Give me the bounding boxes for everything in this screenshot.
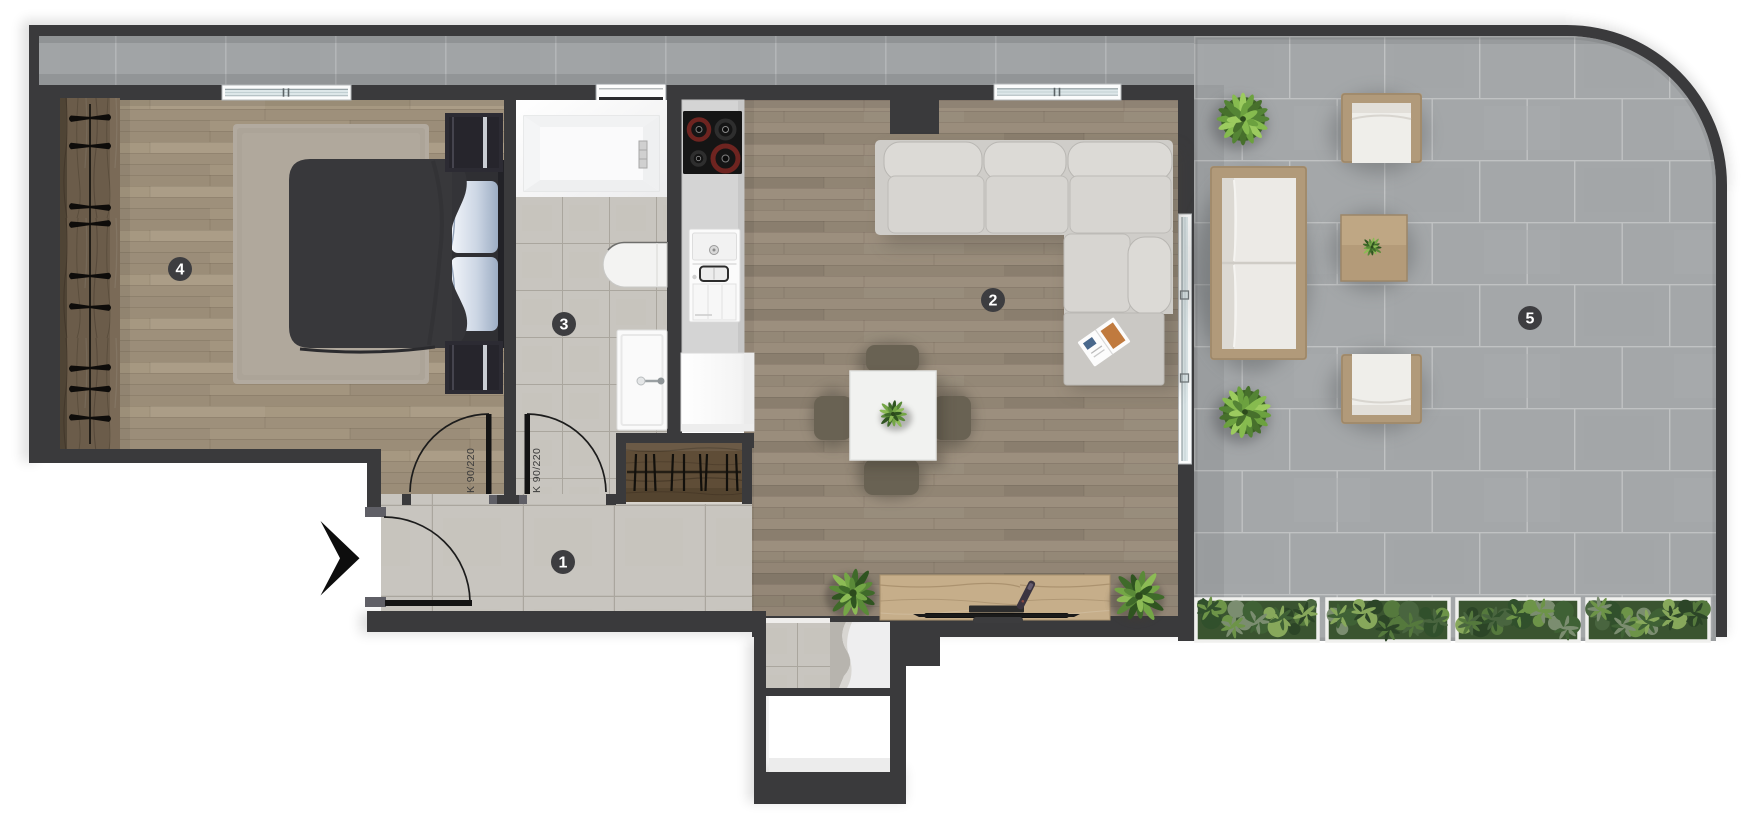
svg-text:1: 1 <box>559 555 568 572</box>
svg-text:4: 4 <box>176 262 185 279</box>
svg-text:K 90/220: K 90/220 <box>531 448 543 493</box>
svg-text:5: 5 <box>1526 311 1535 328</box>
svg-text:2: 2 <box>989 293 998 310</box>
svg-text:3: 3 <box>560 317 569 334</box>
svg-text:K 90/220: K 90/220 <box>465 448 477 493</box>
